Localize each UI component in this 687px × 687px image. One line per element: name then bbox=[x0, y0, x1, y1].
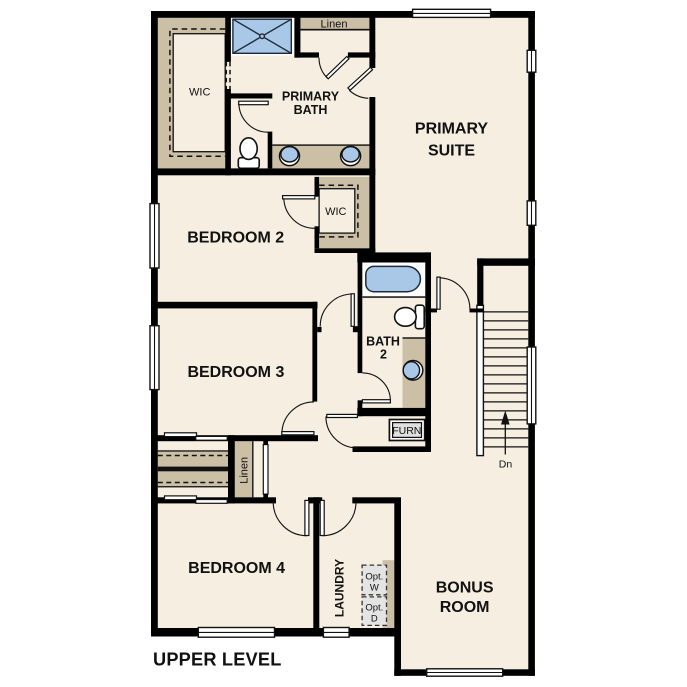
svg-text:LAUNDRY: LAUNDRY bbox=[333, 559, 347, 617]
svg-text:BEDROOM 2: BEDROOM 2 bbox=[187, 229, 284, 246]
svg-text:BEDROOM 4: BEDROOM 4 bbox=[188, 560, 285, 577]
svg-text:FURN: FURN bbox=[392, 425, 421, 437]
svg-text:2: 2 bbox=[380, 347, 387, 361]
svg-text:Opt.: Opt. bbox=[365, 603, 383, 614]
svg-text:Opt.: Opt. bbox=[365, 571, 383, 582]
svg-text:BATH: BATH bbox=[366, 334, 400, 348]
svg-text:PRIMARY: PRIMARY bbox=[282, 89, 340, 103]
svg-text:W: W bbox=[370, 582, 379, 593]
svg-text:SUITE: SUITE bbox=[428, 143, 475, 160]
svg-text:UPPER LEVEL: UPPER LEVEL bbox=[153, 650, 282, 670]
svg-text:PRIMARY: PRIMARY bbox=[415, 121, 489, 138]
svg-text:WIC: WIC bbox=[325, 206, 346, 218]
svg-text:BONUS: BONUS bbox=[436, 580, 494, 597]
svg-text:D: D bbox=[371, 614, 378, 625]
svg-text:Linen: Linen bbox=[321, 18, 348, 30]
svg-text:Linen: Linen bbox=[239, 457, 251, 484]
svg-text:WIC: WIC bbox=[189, 87, 210, 99]
svg-text:ROOM: ROOM bbox=[440, 599, 490, 616]
svg-text:BATH: BATH bbox=[294, 103, 328, 117]
svg-text:BEDROOM 3: BEDROOM 3 bbox=[187, 364, 284, 381]
svg-text:Dn: Dn bbox=[499, 458, 513, 470]
